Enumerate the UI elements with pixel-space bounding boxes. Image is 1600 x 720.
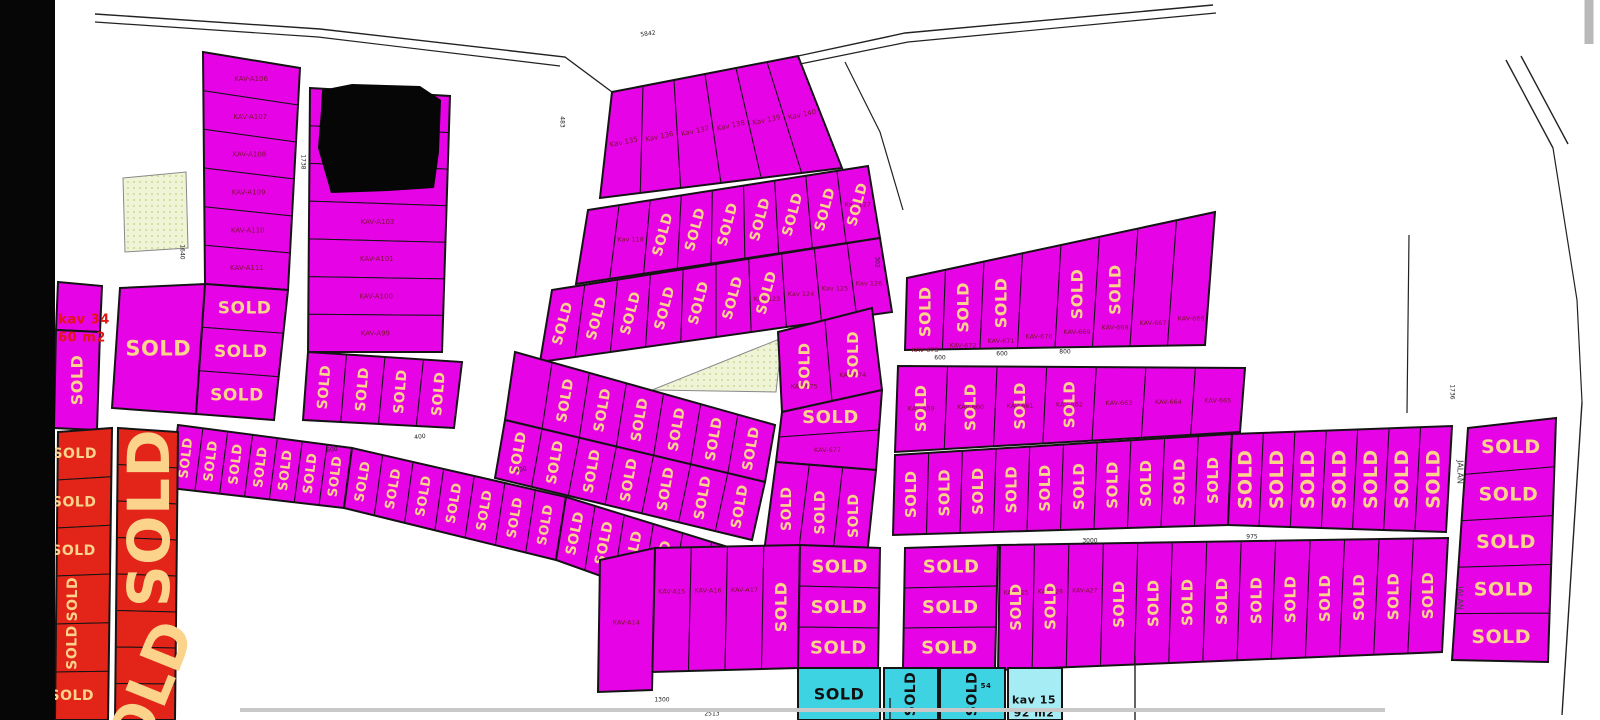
- parcel-id-label: KAV-665: [1204, 397, 1231, 405]
- sold-label: SOLD: [1360, 449, 1382, 509]
- jalan-label-1: JALAN: [1456, 459, 1465, 484]
- dimension-label: 3000: [1082, 538, 1097, 545]
- parcel-id-label: KAV-A103: [361, 218, 395, 226]
- letterbox-bar: [0, 0, 55, 720]
- parcel-id-label: KAV-669: [1064, 328, 1091, 336]
- parcel-id-label: Kav 118: [617, 236, 643, 244]
- sold-label: SOLD: [52, 446, 97, 462]
- sold-label: SOLD: [1179, 578, 1197, 626]
- sold-label: SOLD: [902, 470, 920, 518]
- dimension-label: 1640: [179, 244, 186, 259]
- parcel-id-label: KAV-A107: [233, 113, 267, 121]
- sold-label: SOLD: [1204, 456, 1222, 504]
- sold-label: SOLD: [1144, 579, 1162, 627]
- sold-label: SOLD: [1213, 577, 1231, 625]
- parcel-id-label: Kav 125: [822, 285, 848, 293]
- parcel-id-label: KAV-A99: [361, 329, 390, 337]
- sold-label: SOLD: [954, 282, 973, 333]
- kav34-label-line2: 60 m2: [58, 331, 106, 346]
- parcel-id-label: KAV-664: [1155, 398, 1182, 406]
- sold-label: SOLD: [1282, 576, 1300, 624]
- parcel-id-label: KAV-A111: [230, 264, 264, 272]
- sold-label: SOLD: [1036, 464, 1054, 512]
- sold-label: SOLD: [218, 299, 272, 319]
- sold-label: SOLD: [1110, 580, 1128, 628]
- sold-label: SOLD: [802, 407, 859, 428]
- parcel-kav-a15-block-0: [652, 547, 691, 672]
- sold-label: SOLD: [1350, 574, 1368, 622]
- sold-label: SOLD: [992, 278, 1011, 329]
- sold-label: SOLD: [846, 493, 862, 538]
- parcel-id-label: KAV-A109: [232, 188, 266, 196]
- parcel-id-label: KAV-663: [1105, 399, 1132, 407]
- dimension-label: 1736: [1449, 384, 1456, 399]
- sold-label: SOLD: [1481, 436, 1541, 458]
- dimension-label: 600: [996, 351, 1008, 358]
- parcel-id-label: KAV-671: [988, 337, 1015, 345]
- sold-label: SOLD: [50, 688, 95, 704]
- sold-label: SOLD: [210, 385, 264, 405]
- dimension-label: 600: [934, 355, 946, 362]
- dimension-label: 975: [1246, 534, 1258, 541]
- dimension-label: 800: [1059, 349, 1071, 356]
- parcel-id-label: KAV-A14: [613, 619, 640, 627]
- parcel-id-label: KAV-A15: [658, 588, 685, 596]
- sold-label: SOLD: [795, 342, 813, 390]
- sold-label: SOLD: [1137, 460, 1155, 508]
- giant-sold-upper: SOLD: [115, 429, 183, 607]
- sold-label: SOLD: [1106, 264, 1125, 315]
- sold-label: SOLD: [1316, 575, 1334, 623]
- redaction-blob: [318, 84, 441, 193]
- sold-label: SOLD: [969, 467, 987, 515]
- sold-label: SOLD: [1007, 583, 1025, 631]
- parcel-id-label: KAV-670: [1026, 332, 1053, 340]
- parcel-id-label: KAV-672: [950, 341, 977, 349]
- sold-label: SOLD: [1171, 458, 1189, 506]
- sold-label: SOLD: [912, 385, 930, 433]
- sold-label: SOLD: [1070, 463, 1088, 511]
- sold-label: SOLD: [64, 625, 80, 670]
- parcel-id-label: KAV-A106: [234, 75, 268, 83]
- kav15-label-line1: kav 15: [1012, 694, 1056, 707]
- sold-label: SOLD: [1474, 579, 1534, 601]
- hatch-square: [123, 172, 188, 252]
- sold-label: SOLD: [1471, 626, 1531, 648]
- sold-label: SOLD: [1476, 531, 1536, 553]
- sold-label: SOLD: [810, 637, 867, 658]
- sold-label: SOLD: [51, 543, 96, 559]
- parcel-id-label: KAV-666: [1178, 315, 1205, 323]
- parcel-id-label: Kav 124: [788, 290, 814, 298]
- parcel-id-label: KAV-A27: [1072, 588, 1097, 595]
- sold-label: SOLD: [1385, 573, 1403, 621]
- sold-label: SOLD: [214, 342, 268, 362]
- dimension-label: 1300: [654, 697, 669, 704]
- dimension-label: 1738: [300, 154, 307, 169]
- kav34-label-line1: kav 34: [58, 313, 110, 328]
- sold-label: SOLD: [1422, 449, 1444, 509]
- parcel-kav-a15-block-1: [689, 547, 728, 672]
- sold-label: SOLD: [1329, 449, 1351, 509]
- parcel-kav-a15-block-2: [725, 546, 764, 670]
- sold-label: SOLD: [1419, 572, 1437, 620]
- jalan-label-2: JALAN: [1456, 585, 1465, 610]
- sold-label: SOLD: [844, 331, 862, 379]
- parcel-id-label: KAV-A16: [694, 587, 721, 595]
- parcel-id-label: KAV-677: [814, 446, 841, 454]
- parcel-id-label: KAV-A101: [360, 255, 394, 263]
- parcel-id-label: KAV-668: [1102, 324, 1129, 332]
- sold-label: SOLD: [811, 597, 868, 618]
- parcel-id-label: Kav 126: [856, 280, 882, 288]
- cyan-plot-number: 54: [981, 682, 992, 690]
- sold-label: SOLD: [125, 337, 191, 361]
- sold-label: SOLD: [1003, 466, 1021, 514]
- sold-label: SOLD: [52, 495, 97, 511]
- sold-label: SOLD: [1266, 450, 1288, 510]
- sold-label: SOLD: [814, 685, 865, 704]
- sold-label: SOLD: [1011, 382, 1029, 430]
- sold-label: SOLD: [1247, 576, 1265, 624]
- sold-label: SOLD: [811, 556, 868, 577]
- sold-label: SOLD: [921, 637, 978, 658]
- sold-label: SOLD: [1068, 269, 1087, 320]
- sold-label: SOLD: [1061, 381, 1079, 429]
- sold-label: SOLD: [1041, 582, 1059, 630]
- parcel-id-label: KAV-A108: [233, 151, 267, 159]
- dimension-label: 302: [874, 256, 881, 268]
- site-plan-image: KAV-A106KAV-A107KAV-A108KAV-A109KAV-A110…: [0, 0, 1600, 720]
- sold-label: SOLD: [771, 582, 790, 633]
- parcel-bottom-row-2: [1066, 543, 1103, 667]
- parcel-id-label: KAV-A110: [231, 226, 265, 234]
- parcel-id-label: KAV-A100: [359, 292, 393, 300]
- plot-map-svg: KAV-A106KAV-A107KAV-A108KAV-A109KAV-A110…: [0, 0, 1600, 720]
- sold-label: SOLD: [935, 469, 953, 517]
- sold-label: SOLD: [1297, 449, 1319, 509]
- sold-label: SOLD: [779, 486, 795, 531]
- sold-label: SOLD: [67, 355, 86, 406]
- sold-label: SOLD: [1235, 450, 1257, 510]
- sold-label: SOLD: [916, 286, 935, 337]
- sold-label: SOLD: [923, 556, 980, 577]
- dimension-label: 483: [559, 116, 566, 128]
- parcel-id-label: KAV-667: [1140, 319, 1167, 327]
- sold-label: SOLD: [922, 597, 979, 618]
- sold-label: SOLD: [1391, 449, 1413, 509]
- sold-label: SOLD: [962, 383, 980, 431]
- sold-label: SOLD: [1103, 461, 1121, 509]
- sold-label: SOLD: [813, 490, 829, 535]
- sold-label: SOLD: [1479, 483, 1539, 505]
- sold-label: SOLD: [65, 577, 81, 622]
- parcel-id-label: KAV-673: [912, 346, 939, 354]
- parcel-id-label: KAV-A17: [731, 586, 758, 594]
